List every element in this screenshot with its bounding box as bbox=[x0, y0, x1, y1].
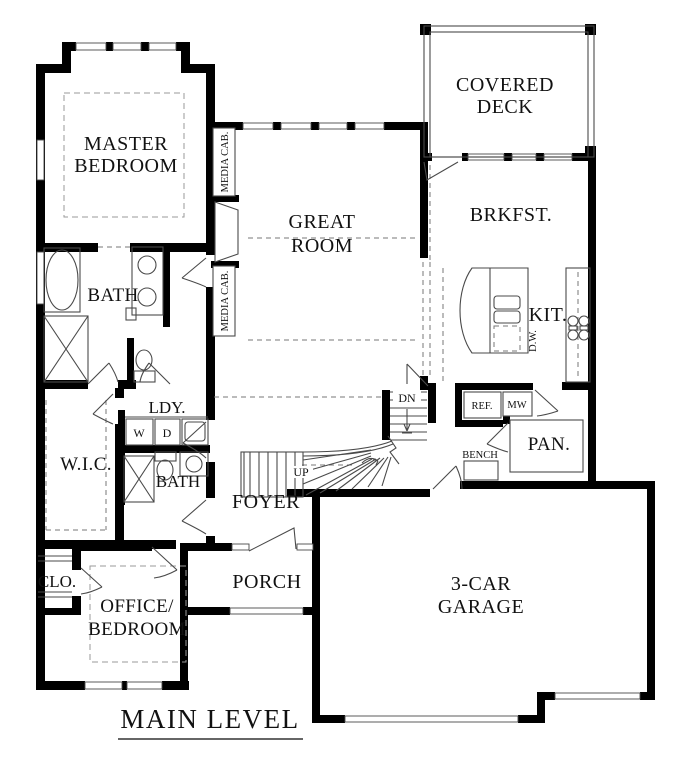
sink-icon-1 bbox=[138, 256, 156, 274]
stair-dn-label: DN bbox=[398, 391, 416, 405]
great-room-label-2: ROOM bbox=[291, 235, 353, 257]
garage-label-1: 3-CAR bbox=[451, 573, 511, 595]
covered-deck-label-2: DECK bbox=[477, 96, 534, 118]
kitchen-island bbox=[460, 268, 528, 353]
wic-door-leaf bbox=[93, 394, 113, 424]
laundry-label: LDY. bbox=[149, 398, 186, 417]
washer-label: W bbox=[133, 426, 145, 440]
plan-title-block: MAIN LEVEL bbox=[118, 704, 303, 739]
staircase: DN UP bbox=[241, 391, 427, 497]
office-label-1: OFFICE/ bbox=[100, 596, 174, 617]
master-bath-label: BATH bbox=[87, 285, 138, 306]
master-door-leaf bbox=[182, 258, 206, 287]
plan-title: MAIN LEVEL bbox=[120, 704, 299, 734]
pantry-door-leaf bbox=[487, 423, 508, 452]
microwave-label: MW bbox=[507, 400, 526, 411]
great-room-label-1: GREAT bbox=[289, 211, 356, 233]
stair-up-label: UP bbox=[293, 465, 309, 479]
foyer-label: FOYER bbox=[232, 491, 300, 513]
kitchen-label: KIT. bbox=[529, 304, 568, 326]
pedestal-sink-icon bbox=[126, 308, 136, 320]
closet-label: CLO. bbox=[38, 572, 76, 591]
master-bedroom-label-2: BEDROOM bbox=[74, 155, 178, 177]
bench-seat bbox=[464, 461, 498, 480]
tub-platform bbox=[44, 248, 80, 312]
floor-plan-image: DN UP MASTER BEDROOM GREAT ROOM COVERED … bbox=[0, 0, 689, 768]
shower-icon-hall bbox=[124, 456, 154, 502]
bench-label: BENCH bbox=[462, 450, 498, 461]
porch-label: PORCH bbox=[232, 571, 301, 593]
front-door-leaf bbox=[249, 528, 296, 551]
deck-door-leaf bbox=[424, 162, 458, 180]
pantry-label: PAN. bbox=[528, 434, 571, 455]
fireplace-icon bbox=[215, 202, 238, 262]
dishwasher-label: D.W. bbox=[528, 330, 539, 352]
closet-door-leaf bbox=[81, 568, 102, 594]
kitchen-hall-door-leaf bbox=[535, 390, 558, 416]
hall-bath-label: BATH bbox=[156, 472, 200, 491]
garage-entry-door-leaf bbox=[433, 466, 462, 489]
refrigerator-label: REF. bbox=[471, 401, 492, 412]
floor-plan-drawing: DN UP MASTER BEDROOM GREAT ROOM COVERED … bbox=[0, 0, 689, 768]
dryer-label: D bbox=[163, 426, 172, 440]
master-bedroom-label-1: MASTER bbox=[84, 133, 168, 155]
breakfast-label: BRKFST. bbox=[470, 204, 553, 226]
office-door-leaf bbox=[152, 547, 177, 578]
shower-icon-master bbox=[44, 316, 88, 382]
media-cab-lower-label: MEDIA CAB. bbox=[220, 271, 231, 332]
garage-label-2: GARAGE bbox=[438, 596, 524, 618]
garage-door-opening-2 bbox=[555, 693, 640, 699]
office-label-2: BEDROOM bbox=[88, 619, 186, 640]
wic-label: W.I.C. bbox=[60, 454, 112, 475]
sink-icon-3 bbox=[186, 456, 202, 472]
bath-door-leaf bbox=[88, 363, 118, 384]
garage-door-opening bbox=[345, 716, 518, 722]
hall-bath-door-leaf bbox=[182, 500, 206, 534]
down-arrow-icon bbox=[402, 409, 412, 433]
basement-stair-door-leaf bbox=[407, 364, 428, 386]
media-cab-upper-label: MEDIA CAB. bbox=[220, 132, 231, 193]
bathtub-icon bbox=[46, 250, 78, 310]
sink-icon-2 bbox=[138, 288, 156, 306]
covered-deck-label-1: COVERED bbox=[456, 74, 554, 96]
